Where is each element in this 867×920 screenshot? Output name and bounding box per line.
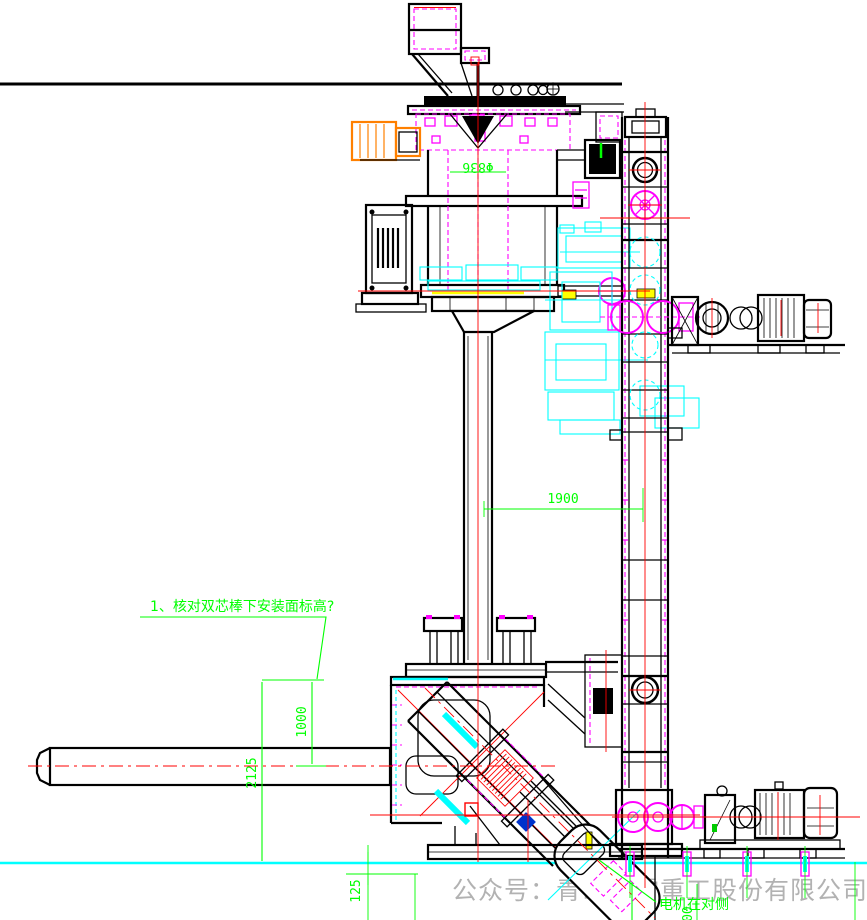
cad-drawing: 公众号：青岛雷霆重工股份有限公司 bbox=[0, 0, 867, 920]
mixer-head bbox=[352, 83, 655, 332]
feed-hopper bbox=[409, 4, 489, 96]
dim-125-label: 125 bbox=[349, 879, 364, 902]
agitator-motor bbox=[352, 122, 420, 160]
dimension-1900: 1900 bbox=[484, 488, 643, 522]
dim-836-label: Φ836 bbox=[462, 159, 493, 174]
elevator-tower bbox=[545, 109, 700, 858]
dimension-836: Φ836 bbox=[450, 159, 506, 174]
dim-1000-label: 1000 bbox=[295, 706, 310, 737]
support-legs bbox=[406, 615, 546, 677]
dim-2125-label: 2125 bbox=[245, 757, 260, 788]
dimension-1000: 1000 bbox=[262, 680, 326, 766]
dim-1900-label: 1900 bbox=[547, 492, 578, 507]
note-check-elevation: 1、核对双芯棒下安装面标高? bbox=[150, 598, 334, 615]
note-motor-opposite: 电机在对侧 bbox=[659, 897, 729, 913]
tower-drive-coupling bbox=[600, 301, 700, 333]
wechat-icon bbox=[394, 873, 443, 909]
lower-motor bbox=[755, 790, 804, 838]
dimension-2125: 2125 bbox=[245, 682, 262, 861]
output-shaft bbox=[37, 748, 390, 785]
cad-drawing-page: 公众号：青岛雷霆重工股份有限公司 bbox=[0, 0, 867, 920]
dimension-125: 125 bbox=[346, 845, 418, 920]
lower-drive-unit bbox=[618, 782, 845, 858]
centerlines bbox=[28, 62, 860, 918]
left-bracket bbox=[356, 205, 426, 312]
tower-boot-bracket bbox=[545, 650, 622, 752]
